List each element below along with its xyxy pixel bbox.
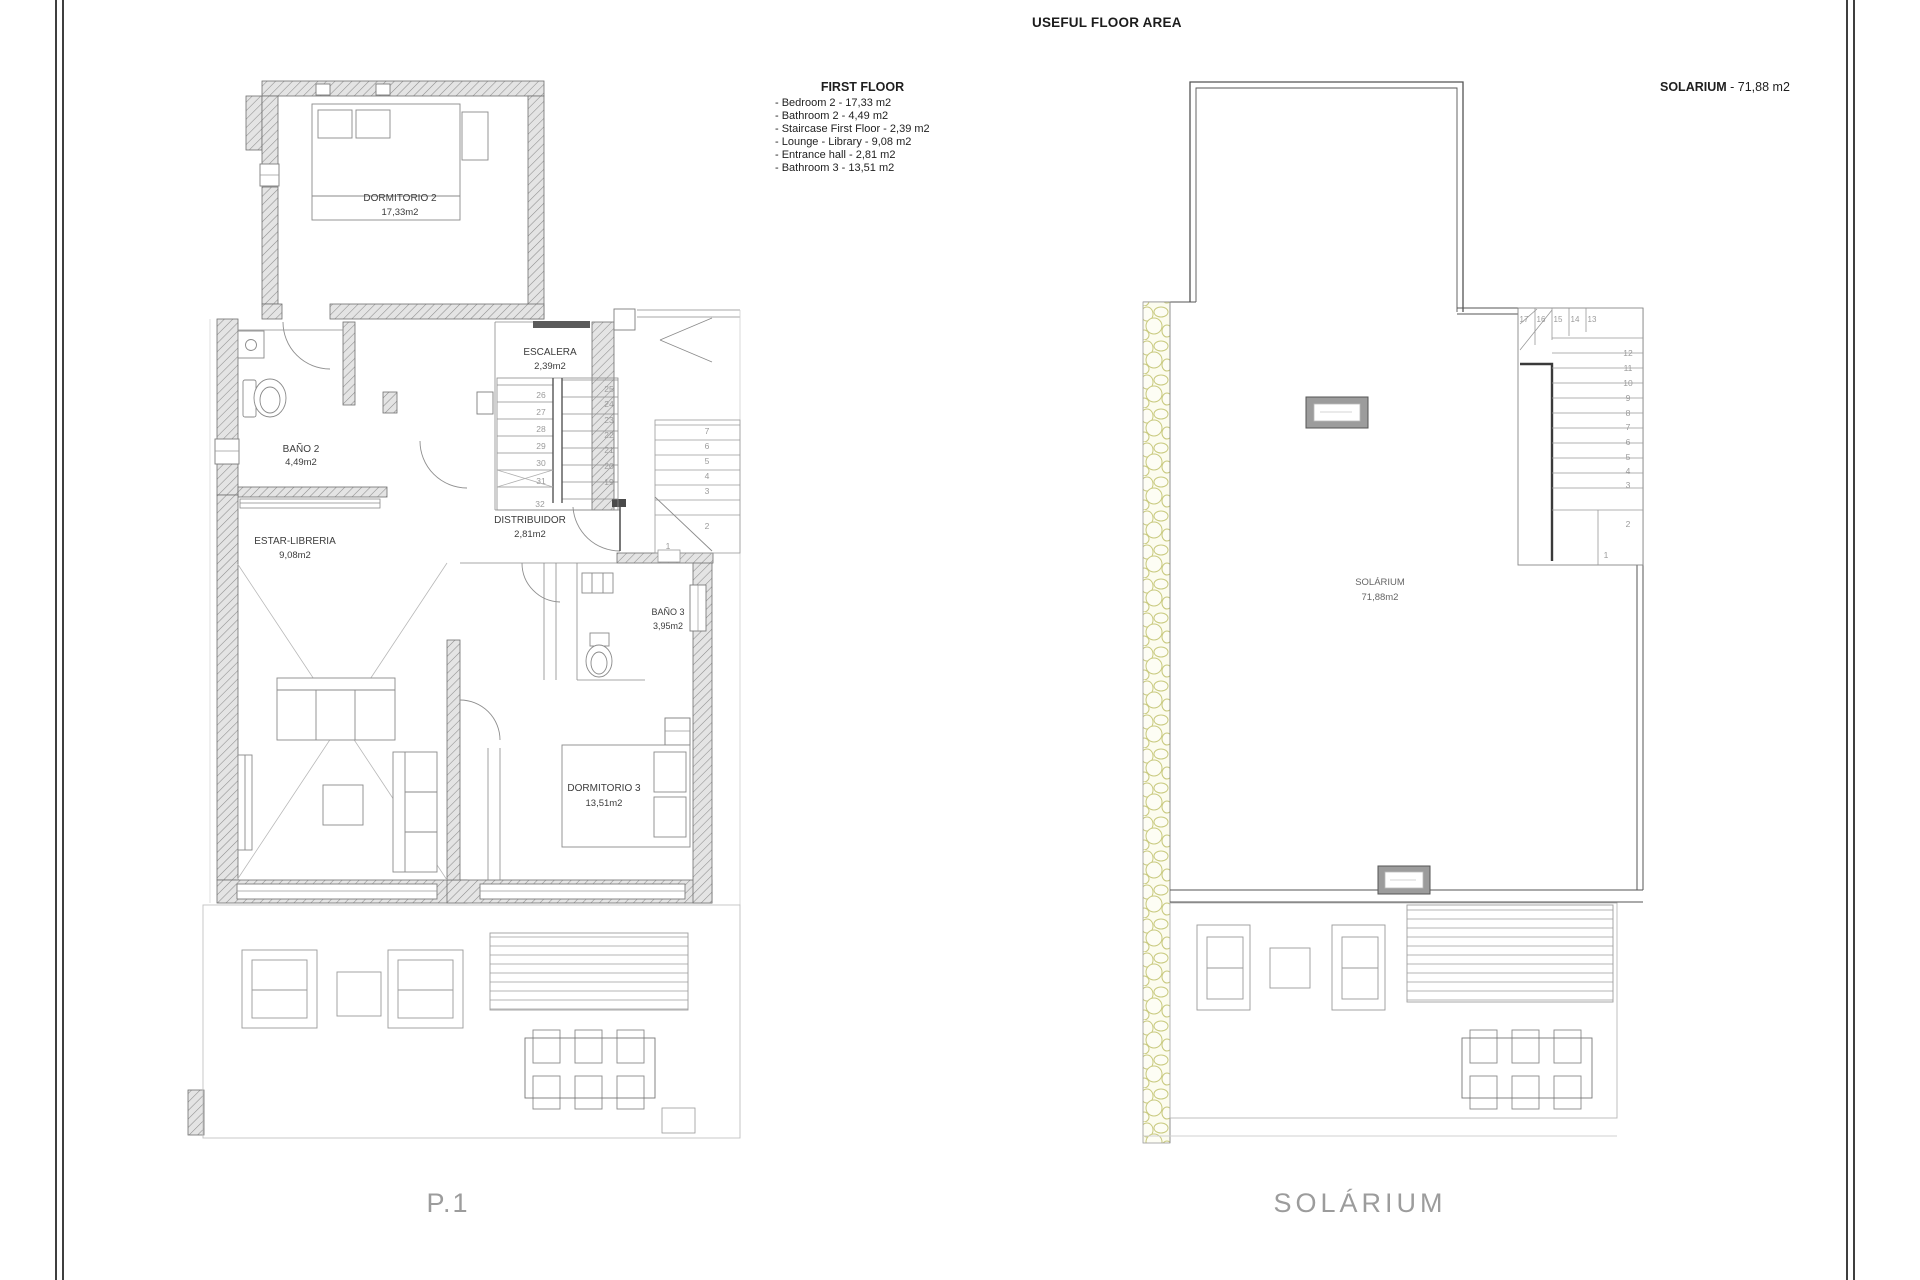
room-label-escalera: ESCALERA (523, 347, 577, 358)
entrance-door-leaf (612, 499, 626, 507)
room-area-escalera: 2,39m2 (534, 361, 566, 372)
stair-number: 3 (1626, 480, 1631, 490)
stair-number: 14 (1571, 315, 1580, 324)
armchair-icon (388, 950, 463, 1028)
coffee-table-icon (323, 785, 363, 825)
first-floor-caption: P.1 (388, 1188, 508, 1219)
skylight (1306, 397, 1368, 428)
stair-number: 23 (604, 415, 614, 425)
room-area-bano2: 4,49m2 (285, 457, 317, 468)
solarium-top-block (1143, 82, 1518, 314)
room-area-dormitorio2: 17,33m2 (382, 207, 419, 218)
bed-dormitorio3-icon (562, 745, 690, 847)
floor-plan-sheet: { "sheet": { "title": "USEFUL FLOOR AREA… (0, 0, 1920, 1280)
room-area-distribuidor: 2,81m2 (514, 529, 546, 540)
stair-number: 10 (1623, 378, 1633, 388)
room-label-dormitorio3: DORMITORIO 3 (567, 783, 641, 794)
room-label-estar: ESTAR-LIBRERIA (254, 536, 336, 547)
stair-number: 25 (604, 384, 614, 394)
stair-number: 19 (604, 477, 614, 487)
stair-number: 6 (705, 441, 710, 451)
stair-number: 2 (1626, 519, 1631, 529)
stair-number: 7 (1626, 422, 1631, 432)
stair-number: 5 (1626, 452, 1631, 462)
terrace-step (662, 1108, 695, 1133)
skylight (1378, 866, 1430, 894)
stair-number: 8 (1626, 408, 1631, 418)
side-table-icon (337, 972, 381, 1016)
stair-number: 32 (535, 499, 545, 509)
wardrobe-icon (582, 573, 613, 593)
deck-stripes (490, 933, 688, 1010)
first-floor-terrace (203, 905, 740, 1138)
armchair-icon (1332, 925, 1385, 1010)
stair-number: 4 (705, 471, 710, 481)
stair-number: 22 (604, 430, 614, 440)
stair-number: 3 (705, 486, 710, 496)
stair-number: 27 (536, 407, 546, 417)
room-label-bano3: BAÑO 3 (651, 607, 684, 617)
stair-number: 15 (1554, 315, 1563, 324)
solarium-labels: SOLÁRIUM 71,88m2 (1355, 577, 1405, 603)
stair-number: 30 (536, 458, 546, 468)
stair-number: 9 (1626, 393, 1631, 403)
stair-number: 4 (1626, 466, 1631, 476)
solarium-plan: SOLÁRIUM 71,88m2 17 16 15 14 13 12 11 10… (1143, 82, 1643, 1143)
stair-number: 31 (536, 476, 546, 486)
stair-number: 7 (705, 426, 710, 436)
solarium-terrace (1143, 903, 1617, 1136)
room-label-distribuidor: DISTRIBUIDOR (494, 515, 566, 526)
stair-number: 16 (1537, 315, 1546, 324)
floor-plans-canvas: DORMITORIO 2 17,33m2 BAÑO 2 4,49m2 ESCAL… (0, 0, 1920, 1280)
stair-number: 1 (666, 541, 671, 551)
stair-number: 1 (1604, 550, 1609, 560)
room-area-dormitorio3: 13,51m2 (586, 798, 623, 809)
stair-number: 17 (1520, 315, 1529, 324)
stone-wall-strip (1143, 302, 1170, 1143)
room-label-dormitorio2: DORMITORIO 2 (363, 193, 437, 204)
solarium-stair-unit (1518, 308, 1643, 565)
stair-number: 24 (604, 399, 614, 409)
sofa-three-seat-icon (277, 678, 395, 740)
stair-number: 20 (604, 461, 614, 471)
dining-set (1462, 1030, 1592, 1109)
sofa-side-icon (393, 752, 437, 872)
armchair-icon (242, 950, 317, 1028)
toilet-bano2-icon (243, 379, 286, 417)
stair-number: 21 (604, 445, 614, 455)
side-table-icon (1270, 948, 1310, 988)
room-area-solarium: 71,88m2 (1362, 592, 1399, 603)
stair-number: 26 (536, 390, 546, 400)
room-label-bano2: BAÑO 2 (283, 442, 320, 455)
deck-stripes (1407, 905, 1613, 1002)
stair-number: 12 (1623, 348, 1633, 358)
first-floor-plan: DORMITORIO 2 17,33m2 BAÑO 2 4,49m2 ESCAL… (188, 81, 740, 1138)
solarium-caption: SOLÁRIUM (1255, 1188, 1465, 1219)
stair-number: 11 (1624, 363, 1633, 373)
room-label-solarium: SOLÁRIUM (1355, 577, 1405, 588)
sink-icon (238, 331, 264, 358)
toilet-bano3-icon (586, 633, 612, 677)
stair-number: 2 (705, 521, 710, 531)
armchair-icon (1197, 925, 1250, 1010)
stair-number: 5 (705, 456, 710, 466)
dining-set (525, 1030, 655, 1109)
room-area-bano3: 3,95m2 (653, 621, 683, 631)
stair-number: 13 (1588, 315, 1597, 324)
stair-number: 29 (536, 441, 546, 451)
stair-number: 6 (1626, 437, 1631, 447)
stair-number: 28 (536, 424, 546, 434)
room-area-estar: 9,08m2 (279, 550, 311, 561)
bookshelf-icon (238, 755, 252, 850)
